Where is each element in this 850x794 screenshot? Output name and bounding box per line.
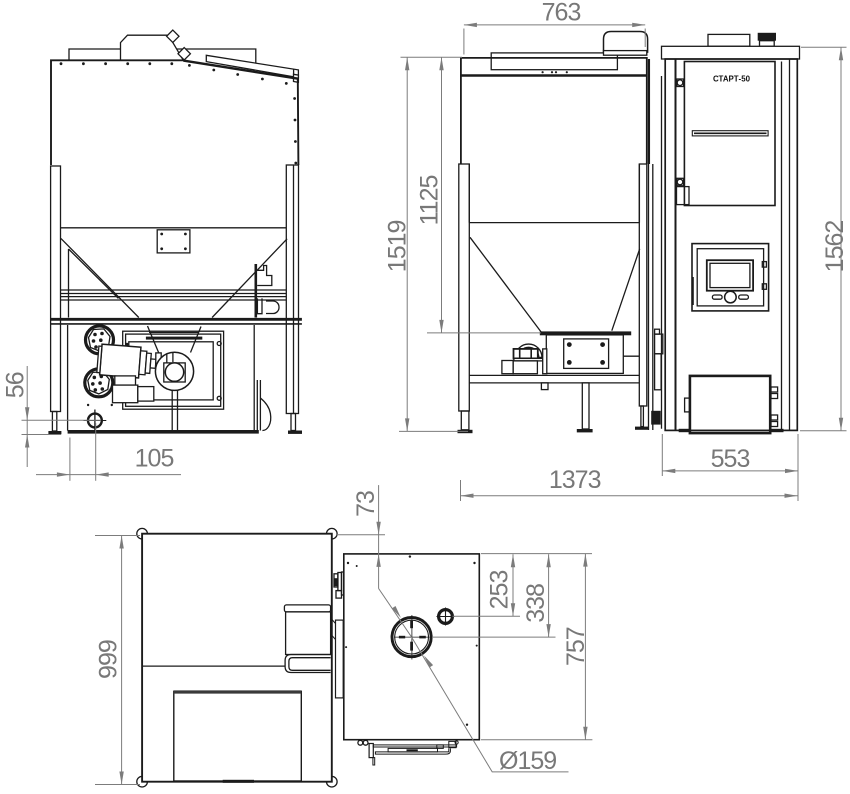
- svg-text:1373: 1373: [549, 466, 601, 494]
- svg-text:105: 105: [135, 445, 174, 473]
- svg-text:56: 56: [1, 372, 29, 398]
- svg-text:СТАРТ-50: СТАРТ-50: [713, 74, 750, 84]
- svg-text:999: 999: [95, 640, 123, 679]
- svg-text:73: 73: [352, 491, 380, 517]
- svg-text:253: 253: [486, 571, 514, 610]
- svg-text:553: 553: [711, 445, 750, 473]
- svg-text:338: 338: [522, 584, 550, 623]
- svg-text:757: 757: [562, 627, 590, 666]
- svg-text:1125: 1125: [416, 176, 444, 226]
- svg-text:1562: 1562: [821, 221, 849, 273]
- svg-text:763: 763: [542, 0, 581, 27]
- svg-text:Ø159: Ø159: [499, 747, 556, 775]
- svg-text:1519: 1519: [384, 221, 412, 273]
